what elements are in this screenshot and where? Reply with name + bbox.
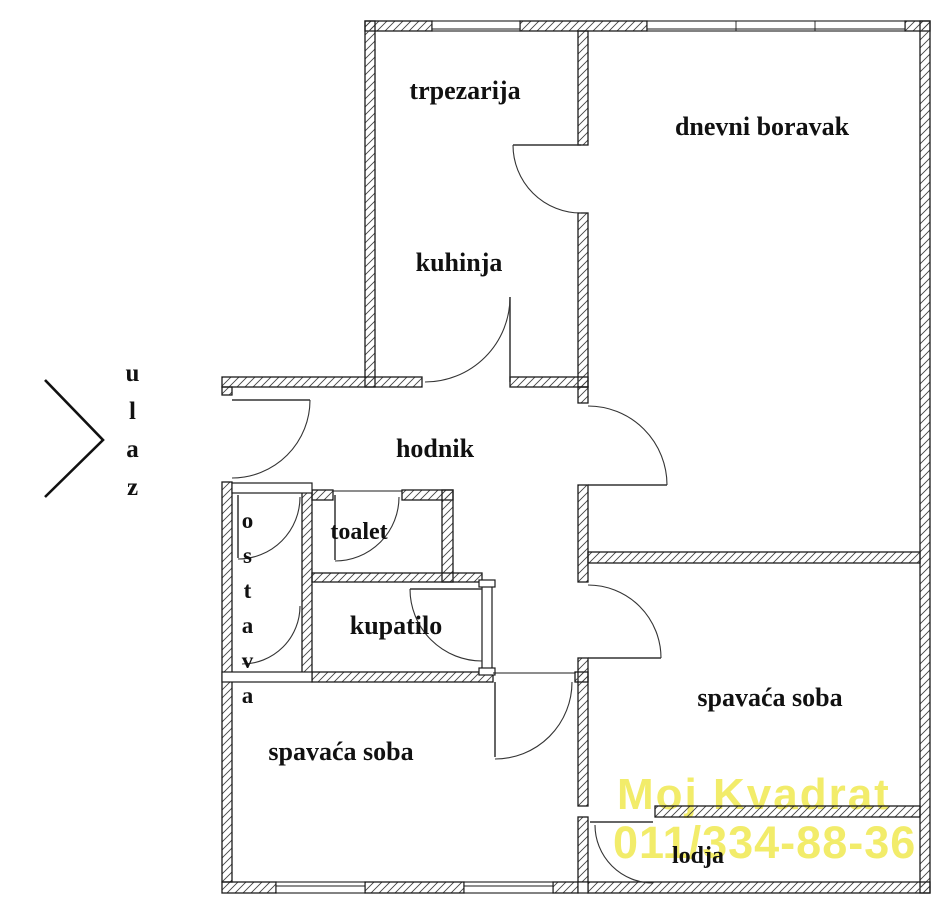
room-label-spavaca-soba-right: spavaća soba [697, 683, 842, 713]
door-arc-dnevni [588, 406, 667, 485]
wall-segment [520, 21, 647, 31]
room-label-spavaca-soba-left: spavaća soba [268, 737, 413, 767]
wall-segment [578, 485, 588, 582]
wall-segment [222, 882, 276, 893]
wall-segment [510, 377, 588, 387]
room-label-dnevni-boravak: dnevni boravak [675, 112, 849, 142]
wall-segment [588, 552, 920, 563]
wall-segment [365, 882, 464, 893]
floor-plan: Moj Kvadrat 011/334-88-36 [0, 0, 940, 900]
window-bedroom-left-1 [276, 882, 365, 893]
wall-segment [578, 31, 588, 145]
room-label-ostava: ostava [234, 508, 260, 718]
entrance-label: ulaz [118, 360, 146, 512]
window-trpezarija [432, 21, 520, 31]
window-dnevni [647, 21, 905, 31]
wall-segment [222, 387, 232, 395]
room-label-trpezarija: trpezarija [409, 76, 520, 106]
wall-segment [302, 490, 312, 673]
ostava-front-band [232, 483, 312, 493]
entrance-arrow-icon [45, 380, 103, 497]
frame-cap [479, 580, 495, 587]
wall-segment [442, 490, 453, 582]
wall-segment [365, 21, 375, 387]
door-arc-trpezarija [513, 145, 581, 213]
room-label-lodja: lodja [672, 843, 724, 870]
wall-segment [578, 817, 588, 882]
thin-partitions [222, 483, 588, 893]
room-label-toalet: toalet [330, 519, 387, 546]
wall-segment [312, 573, 482, 582]
door-arc-kuhinja [425, 297, 510, 382]
door-arc-bedroom-right [588, 585, 661, 658]
kupatilo-door-frame [482, 582, 492, 673]
wall-segment [920, 21, 930, 893]
wall-segment [575, 672, 588, 682]
wall-end-cap [578, 882, 588, 893]
wall-segment [222, 377, 422, 387]
door-arc-lodja [595, 825, 653, 883]
wall-segment [655, 806, 920, 817]
room-label-kupatilo: kupatilo [350, 611, 443, 641]
wall-segment [312, 672, 493, 682]
wall-segment [553, 882, 578, 893]
room-label-kuhinja: kuhinja [416, 248, 503, 278]
room-label-hodnik: hodnik [396, 434, 474, 464]
door-arc-entrance [232, 400, 310, 478]
wall-segment [588, 882, 930, 893]
frame-cap [479, 668, 495, 675]
door-arc-bedroom-left [495, 682, 572, 759]
wall-segment [578, 213, 588, 387]
wall-segment [312, 490, 333, 500]
wall-segment [578, 387, 588, 403]
window-bedroom-left-2 [464, 882, 553, 893]
